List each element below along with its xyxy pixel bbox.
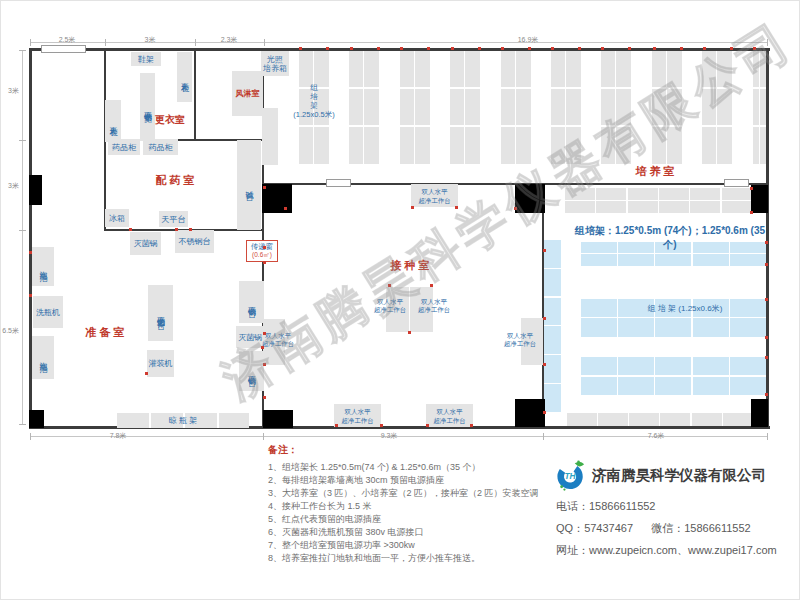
phone-number: 15866611552 <box>589 500 655 512</box>
wechat-number: 15866611552 <box>684 522 750 534</box>
equipment-box: 晾 瓶 架 <box>117 413 249 428</box>
room-label: 准 备 室 <box>60 325 150 340</box>
notes-section: 备注： 1、组培架长 1.25*0.5m(74 个) & 1.25*0.6m（3… <box>268 443 553 565</box>
dimension-tick <box>195 39 196 46</box>
power-outlet-dot <box>578 47 581 50</box>
power-outlet-dot <box>730 47 733 50</box>
power-outlet-dot <box>628 47 631 50</box>
bench-label: 双人水平 超净工作台 <box>412 298 456 314</box>
power-outlet-dot <box>653 47 656 50</box>
power-outlet-dot <box>263 261 266 264</box>
power-outlet-dot <box>543 363 546 366</box>
power-outlet-dot <box>750 187 753 190</box>
structural-column <box>263 410 293 428</box>
dimension-tick <box>19 50 26 51</box>
power-outlet-dot <box>765 393 768 396</box>
structural-column <box>515 184 545 213</box>
equipment-box: 双人水平 超净工作台 <box>334 404 381 427</box>
dimension-tick <box>19 230 26 231</box>
dimension-tick <box>19 424 26 425</box>
culture-rack-vertical <box>450 51 480 165</box>
power-outlet-dot <box>765 336 768 339</box>
power-outlet-dot <box>514 207 517 210</box>
power-outlet-dot <box>263 363 266 366</box>
power-outlet-dot <box>427 47 430 50</box>
power-outlet-dot <box>261 346 264 349</box>
notes-list: 1、组培架长 1.25*0.5m(74 个) & 1.25*0.6m（35 个）… <box>268 461 553 565</box>
power-outlet-dot <box>350 47 353 50</box>
power-outlet-dot <box>380 424 383 427</box>
dimension-tick <box>543 433 544 440</box>
power-outlet-dot <box>543 411 546 414</box>
room-label: 培 养 室 <box>610 164 700 179</box>
wall <box>262 183 544 185</box>
notes-title: 备注： <box>268 443 553 457</box>
power-outlet-dot <box>451 47 454 50</box>
equipment-box: 风淋室 <box>232 71 263 116</box>
note-item: 4、接种工作台长为 1.5 米 <box>268 500 553 513</box>
dimension-label: 3米 <box>0 86 19 96</box>
structural-column <box>29 410 44 428</box>
company-header: TH 济南腾昊科学仪器有限公司 <box>556 459 786 492</box>
rack-size-label-blue: 组 培 架 (1.25x0.6米) <box>615 303 755 314</box>
equipment-box: 洗瓶机 <box>33 296 63 328</box>
equipment-box: 泡瓶池 <box>32 247 54 286</box>
power-outlet-dot <box>753 47 756 50</box>
dimension-line <box>22 50 23 425</box>
dimension-label: 16.9米 <box>513 35 543 45</box>
website-urls: www.zupeicn.com、www.zupei17.com <box>589 544 777 556</box>
power-outlet-dot <box>299 47 302 50</box>
equipment-box: 天平台 <box>159 211 188 227</box>
equipment-box: 灭菌锅 <box>130 232 161 255</box>
note-item: 1、组培架长 1.25*0.5m(74 个) & 1.25*0.6m（35 个） <box>268 461 553 474</box>
dimension-tick <box>30 433 31 440</box>
dimension-label: 7.8米 <box>103 431 133 441</box>
power-outlet-dot <box>335 424 338 427</box>
dimension-label: 2.5米 <box>52 35 82 45</box>
note-item: 8、培养室推拉门地轨和地面一平，方便小推车推送。 <box>268 552 553 565</box>
power-outlet-dot <box>478 47 481 50</box>
floorplan-page: 鞋架更衣柜不锈钢条凳更衣柜风淋室光照 培养箱药品柜药品柜试验台冰箱天平台灭菌锅不… <box>0 0 800 600</box>
equipment-box: 药品柜 <box>108 139 140 155</box>
power-outlet-dot <box>29 251 32 254</box>
equipment-box: 更衣柜 <box>105 100 121 142</box>
culture-rack-horizontal <box>565 188 753 214</box>
website-line: 网址：www.zupeicn.com、www.zupei17.com <box>556 543 786 558</box>
note-item: 2、每排组培架靠墙离地 30cm 预留电源插座 <box>268 474 553 487</box>
dimension-label: 3米 <box>0 181 19 191</box>
dimension-label: 2.3米 <box>214 35 244 45</box>
company-name: 济南腾昊科学仪器有限公司 <box>592 466 766 485</box>
power-outlet-dot <box>263 332 266 335</box>
power-outlet-dot <box>408 331 411 334</box>
culture-rack-blue <box>581 357 767 396</box>
power-outlet-dot <box>765 356 768 359</box>
wall <box>194 50 196 141</box>
power-outlet-dot <box>377 47 380 50</box>
equipment-box: 不锈钢台 <box>239 351 264 391</box>
power-outlet-dot <box>470 424 473 427</box>
equipment-box: 灌装机 <box>147 350 174 377</box>
equipment-box: 不锈钢工作台 <box>148 285 173 341</box>
bench-label: 双人水平 超净工作台 <box>368 298 412 314</box>
dimension-label: 7.6米 <box>641 431 671 441</box>
room-label: 更衣室 <box>140 113 200 127</box>
power-outlet-dot <box>263 186 266 189</box>
wall <box>542 184 544 427</box>
pass-window-name: 传递窗 <box>247 242 277 251</box>
dimension-tick <box>105 39 106 46</box>
power-outlet-dot <box>680 47 683 50</box>
equipment-box: 光照 培养箱 <box>261 51 289 76</box>
structural-column <box>29 175 42 205</box>
power-outlet-dot <box>543 249 546 252</box>
power-outlet-dot <box>263 396 266 399</box>
pass-window: 传递窗(0.6㎡) <box>246 240 278 262</box>
equipment-box: 泡瓶池 <box>32 336 54 379</box>
note-item: 3、大培养室（3 匹）、小培养室（2 匹），接种室（2 匹）安装空调 <box>268 487 553 500</box>
power-outlet-dot <box>765 263 768 266</box>
equipment-box: 双人水平 超净工作台 <box>411 184 458 207</box>
power-outlet-dot <box>430 284 433 287</box>
structural-column <box>515 399 545 427</box>
equipment-box: 药品柜 <box>143 139 178 155</box>
power-outlet-dot <box>175 228 178 231</box>
dimension-label: 9.3米 <box>374 431 404 441</box>
pass-window-size: (0.6㎡) <box>247 251 277 259</box>
power-outlet-dot <box>601 47 604 50</box>
structural-column <box>262 184 292 213</box>
note-item: 5、红点代表预留的电源插座 <box>268 513 553 526</box>
qq-wechat-line: QQ：57437467 微信：15866611552 <box>556 521 786 536</box>
company-block: TH 济南腾昊科学仪器有限公司 电话：15866611552 QQ：574374… <box>556 459 786 558</box>
power-outlet-dot <box>145 372 148 375</box>
culture-rack-vertical <box>652 51 682 165</box>
culture-rack-vertical <box>551 51 581 165</box>
note-item: 7、整个组培室预留电源功率 >300kw <box>268 539 553 552</box>
power-outlet-dot <box>501 47 504 50</box>
dimension-tick <box>263 433 264 440</box>
equipment-box: 不锈钢台 <box>175 230 214 253</box>
culture-rack-vertical <box>601 51 631 165</box>
power-outlet-dot <box>551 47 554 50</box>
power-outlet-dot <box>426 424 429 427</box>
dimension-tick <box>264 39 265 46</box>
qq-number: 57437467 <box>584 522 633 534</box>
structural-column <box>751 185 768 213</box>
power-outlet-dot <box>400 47 403 50</box>
room-label: 配 药 室 <box>130 173 220 188</box>
power-outlet-dot <box>703 47 706 50</box>
equipment-box-plain <box>262 108 278 165</box>
sliding-door <box>41 45 86 53</box>
power-outlet-dot <box>411 206 414 209</box>
room-label: 接 种 室 <box>365 258 455 273</box>
note-item: 6、灭菌器和洗瓶机预留 380v 电源接口 <box>268 526 553 539</box>
dimension-tick <box>767 39 768 46</box>
power-outlet-dot <box>765 298 768 301</box>
power-outlet-dot <box>543 317 546 320</box>
equipment-box: 冰箱 <box>105 209 129 227</box>
dimension-tick <box>767 433 768 440</box>
equipment-box: 双人水平 超净工作台 <box>426 404 473 427</box>
culture-rack-blue <box>543 240 562 413</box>
power-outlet-dot <box>528 47 531 50</box>
svg-text:TH: TH <box>564 471 576 481</box>
power-outlet-dot <box>189 228 192 231</box>
power-outlet-dot <box>29 294 32 297</box>
power-outlet-dot <box>388 284 391 287</box>
company-logo-icon: TH <box>556 459 586 492</box>
dimension-label: 6.5米 <box>0 326 19 336</box>
culture-rack-vertical <box>702 51 732 165</box>
power-outlet-dot <box>455 206 458 209</box>
sliding-door <box>724 179 749 187</box>
dimension-tick <box>30 39 31 46</box>
culture-rack-vertical <box>501 51 531 165</box>
power-outlet-dot <box>263 246 266 249</box>
structural-column <box>751 399 768 427</box>
culture-rack-vertical <box>400 51 430 165</box>
equipment-box: 鞋架 <box>131 52 161 66</box>
dimension-tick <box>19 140 26 141</box>
power-outlet-dot <box>326 47 329 50</box>
equipment-box: 试验台 <box>237 140 261 230</box>
rack-count-annotation: 组培架：1.25*0.5m (74个)；1.25*0.6m (35个) <box>570 224 770 252</box>
power-outlet-dot <box>129 228 132 231</box>
power-outlet-dot <box>284 207 287 210</box>
rack-size-label-vertical: 组 培 架 (1.25x0.5米) <box>289 83 339 119</box>
dimension-label: 3米 <box>135 35 165 45</box>
power-outlet-dot <box>765 241 768 244</box>
equipment-box: 不锈钢台 <box>239 281 264 323</box>
culture-rack-vertical <box>349 51 379 165</box>
equipment-box: 不锈钢条凳 <box>140 73 155 141</box>
sliding-door <box>326 179 351 187</box>
phone-line: 电话：15866611552 <box>556 499 786 514</box>
power-outlet-dot <box>750 211 753 214</box>
bench-label: 双人水平 超净工作台 <box>498 332 542 348</box>
equipment-box: 更衣柜 <box>177 52 192 102</box>
